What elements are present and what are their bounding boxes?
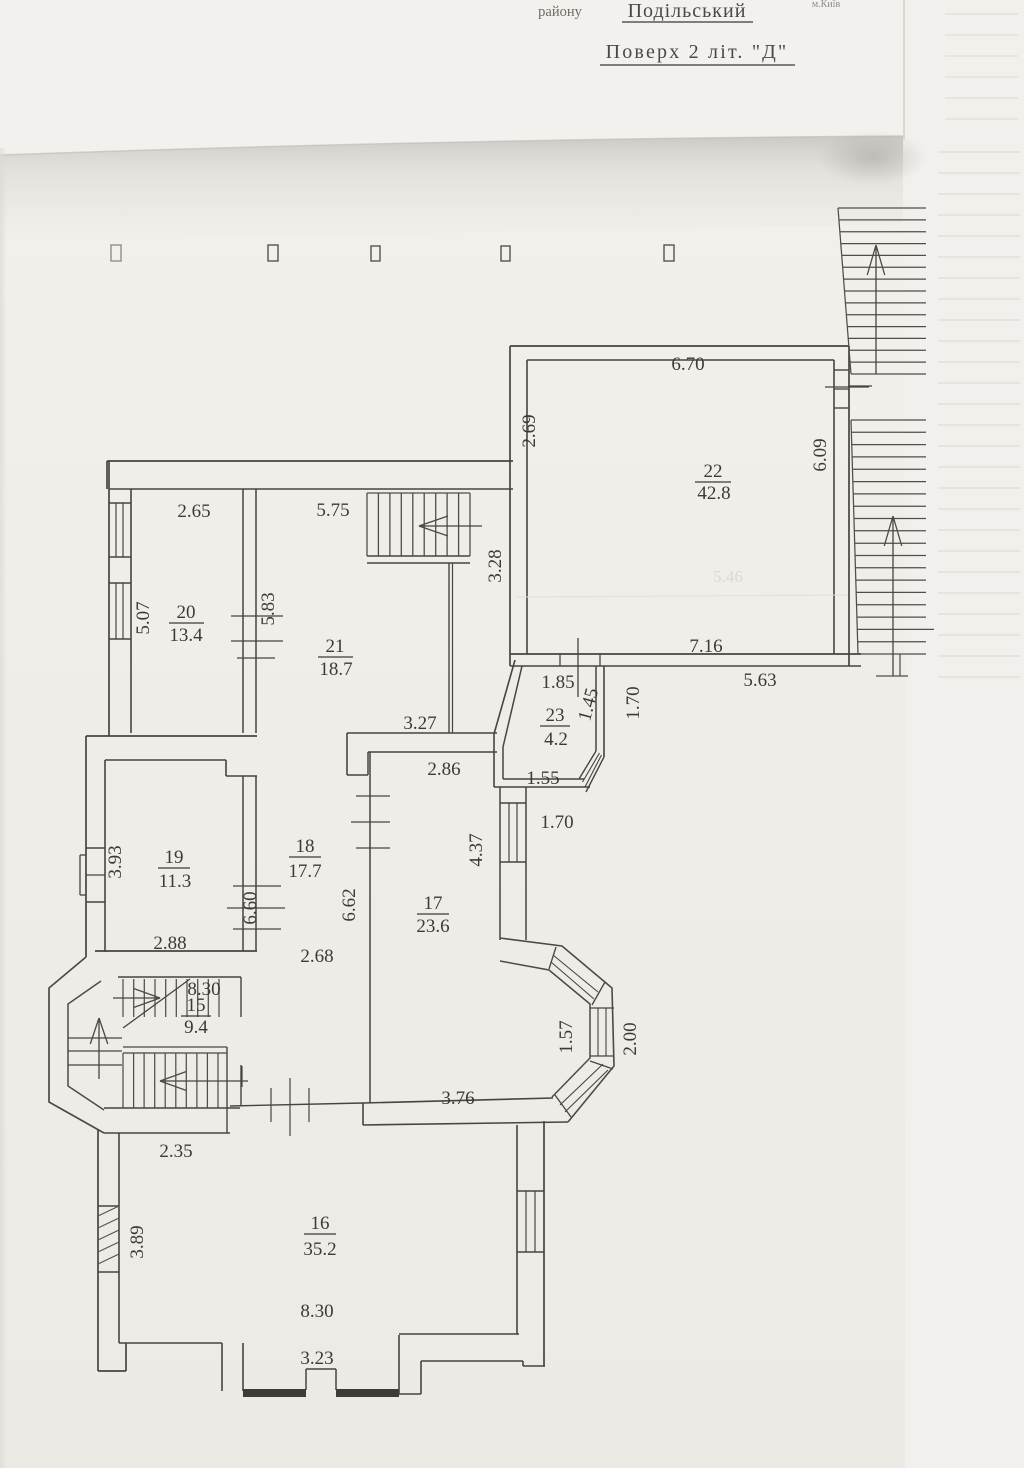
svg-text:1.85: 1.85 <box>541 672 574 693</box>
svg-text:6.60: 6.60 <box>240 891 261 924</box>
svg-text:3.76: 3.76 <box>441 1088 474 1109</box>
svg-text:Подільський: Подільський <box>628 0 747 22</box>
svg-text:4.2: 4.2 <box>544 729 568 750</box>
svg-text:42.8: 42.8 <box>697 483 730 504</box>
svg-text:13.4: 13.4 <box>169 625 203 646</box>
svg-text:1.55: 1.55 <box>526 768 559 789</box>
svg-text:2.68: 2.68 <box>300 946 333 967</box>
svg-text:5.46: 5.46 <box>713 567 743 586</box>
svg-text:17: 17 <box>424 893 443 914</box>
svg-text:2.65: 2.65 <box>177 501 210 522</box>
svg-text:1.70: 1.70 <box>540 812 573 833</box>
svg-text:22: 22 <box>704 461 723 482</box>
svg-text:3.89: 3.89 <box>127 1225 148 1258</box>
svg-text:6.70: 6.70 <box>671 354 704 375</box>
svg-text:3.23: 3.23 <box>300 1348 333 1369</box>
svg-text:3.27: 3.27 <box>403 713 436 734</box>
svg-text:6.09: 6.09 <box>810 438 831 471</box>
svg-text:2.88: 2.88 <box>153 933 186 954</box>
svg-text:2.35: 2.35 <box>159 1141 192 1162</box>
svg-text:4.37: 4.37 <box>466 833 487 866</box>
svg-text:району: району <box>538 4 582 20</box>
svg-text:5.83: 5.83 <box>258 592 279 625</box>
svg-text:18.7: 18.7 <box>319 659 352 680</box>
svg-text:8.30: 8.30 <box>300 1301 333 1322</box>
svg-text:17.7: 17.7 <box>288 861 321 882</box>
svg-text:9.4: 9.4 <box>184 1017 208 1038</box>
svg-text:23: 23 <box>546 705 565 726</box>
svg-text:18: 18 <box>296 836 315 857</box>
svg-text:5.75: 5.75 <box>316 500 349 521</box>
svg-text:6.62: 6.62 <box>339 888 360 921</box>
svg-text:15: 15 <box>187 995 206 1016</box>
svg-text:3.93: 3.93 <box>105 845 126 878</box>
svg-text:23.6: 23.6 <box>416 916 449 937</box>
svg-text:11.3: 11.3 <box>159 871 192 892</box>
svg-text:2.69: 2.69 <box>519 414 540 447</box>
svg-text:1.57: 1.57 <box>556 1020 577 1053</box>
svg-text:5.63: 5.63 <box>743 670 776 691</box>
svg-text:21: 21 <box>326 636 345 657</box>
svg-text:3.28: 3.28 <box>485 549 506 582</box>
svg-text:7.16: 7.16 <box>689 636 722 657</box>
svg-text:Поверх 2 літ. "Д": Поверх 2 літ. "Д" <box>606 41 789 63</box>
svg-text:5.07: 5.07 <box>133 601 154 634</box>
svg-text:16: 16 <box>311 1213 330 1234</box>
svg-text:2.86: 2.86 <box>427 759 460 780</box>
svg-text:19: 19 <box>165 847 184 868</box>
svg-text:1.70: 1.70 <box>623 686 644 719</box>
svg-text:2.00: 2.00 <box>620 1022 641 1055</box>
svg-text:20: 20 <box>177 602 196 623</box>
svg-text:35.2: 35.2 <box>303 1239 336 1260</box>
svg-text:м.Київ: м.Київ <box>812 0 841 10</box>
